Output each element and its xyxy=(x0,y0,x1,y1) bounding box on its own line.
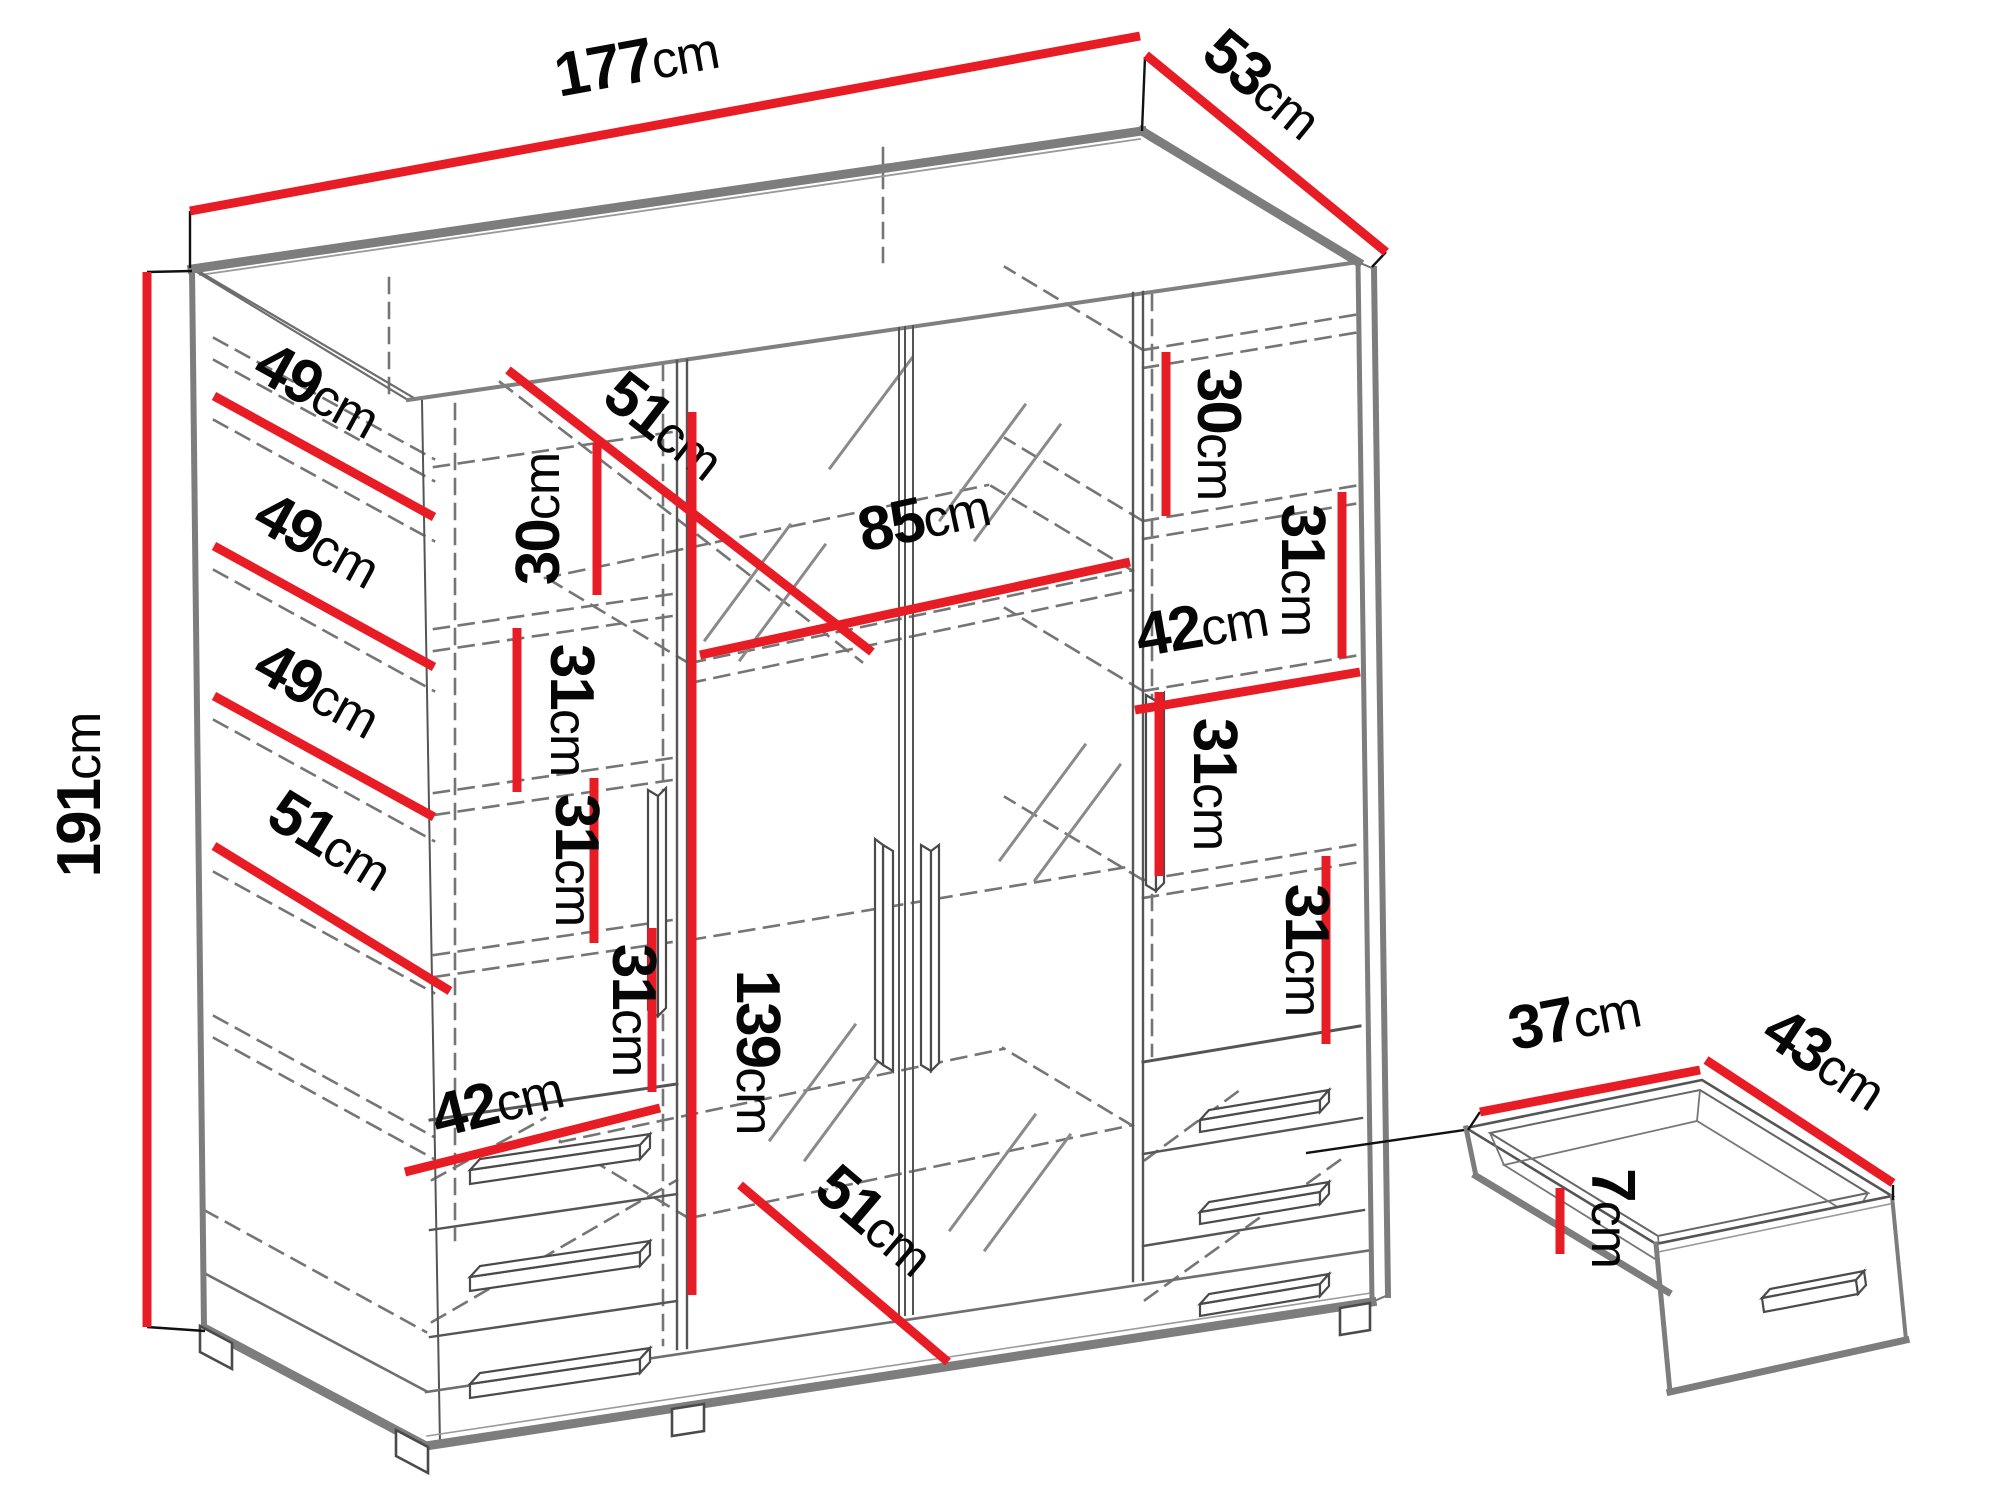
wardrobe-dimension-diagram: 177cm53cm191cm49cm49cm49cm51cm30cm31cm31… xyxy=(0,0,2000,1500)
dimension-gap-31-right-3: 31cm xyxy=(1272,856,1341,1044)
dimension-label: 53cm xyxy=(1190,16,1336,153)
dimension-label: 31cm xyxy=(1180,718,1249,850)
dimension-label: 31cm xyxy=(599,944,668,1076)
dimension-label: 37cm xyxy=(1503,972,1646,1065)
foot xyxy=(1340,1303,1370,1335)
dimension-label: 177cm xyxy=(549,13,724,111)
connector-line xyxy=(147,271,192,272)
dimension-label: 7cm xyxy=(1578,1168,1647,1268)
door-handle-icon xyxy=(921,845,939,1071)
foot xyxy=(672,1404,704,1436)
dimension-label: 31cm xyxy=(537,644,606,776)
dimension-gap-31-left-2: 31cm xyxy=(542,778,611,943)
drawer-detail xyxy=(1466,1080,1906,1392)
dimension-overall-height-191: 191cm xyxy=(45,272,147,1327)
dimension-label: 31cm xyxy=(1272,884,1341,1016)
connector-line xyxy=(147,1327,205,1331)
dimension-label: 30cm xyxy=(504,453,573,585)
dimension-label: 191cm xyxy=(45,713,114,878)
diagram-canvas: 177cm53cm191cm49cm49cm49cm51cm30cm31cm31… xyxy=(0,0,2000,1500)
dimension-label: 139cm xyxy=(723,970,792,1135)
dimension-label: 31cm xyxy=(1268,504,1337,636)
dimension-gap-31-left-3: 31cm xyxy=(599,928,668,1092)
door-handle-icon xyxy=(875,839,893,1071)
dimension-label: 31cm xyxy=(542,794,611,926)
dimension-label: 30cm xyxy=(1184,368,1253,500)
connector-line xyxy=(1142,57,1145,131)
